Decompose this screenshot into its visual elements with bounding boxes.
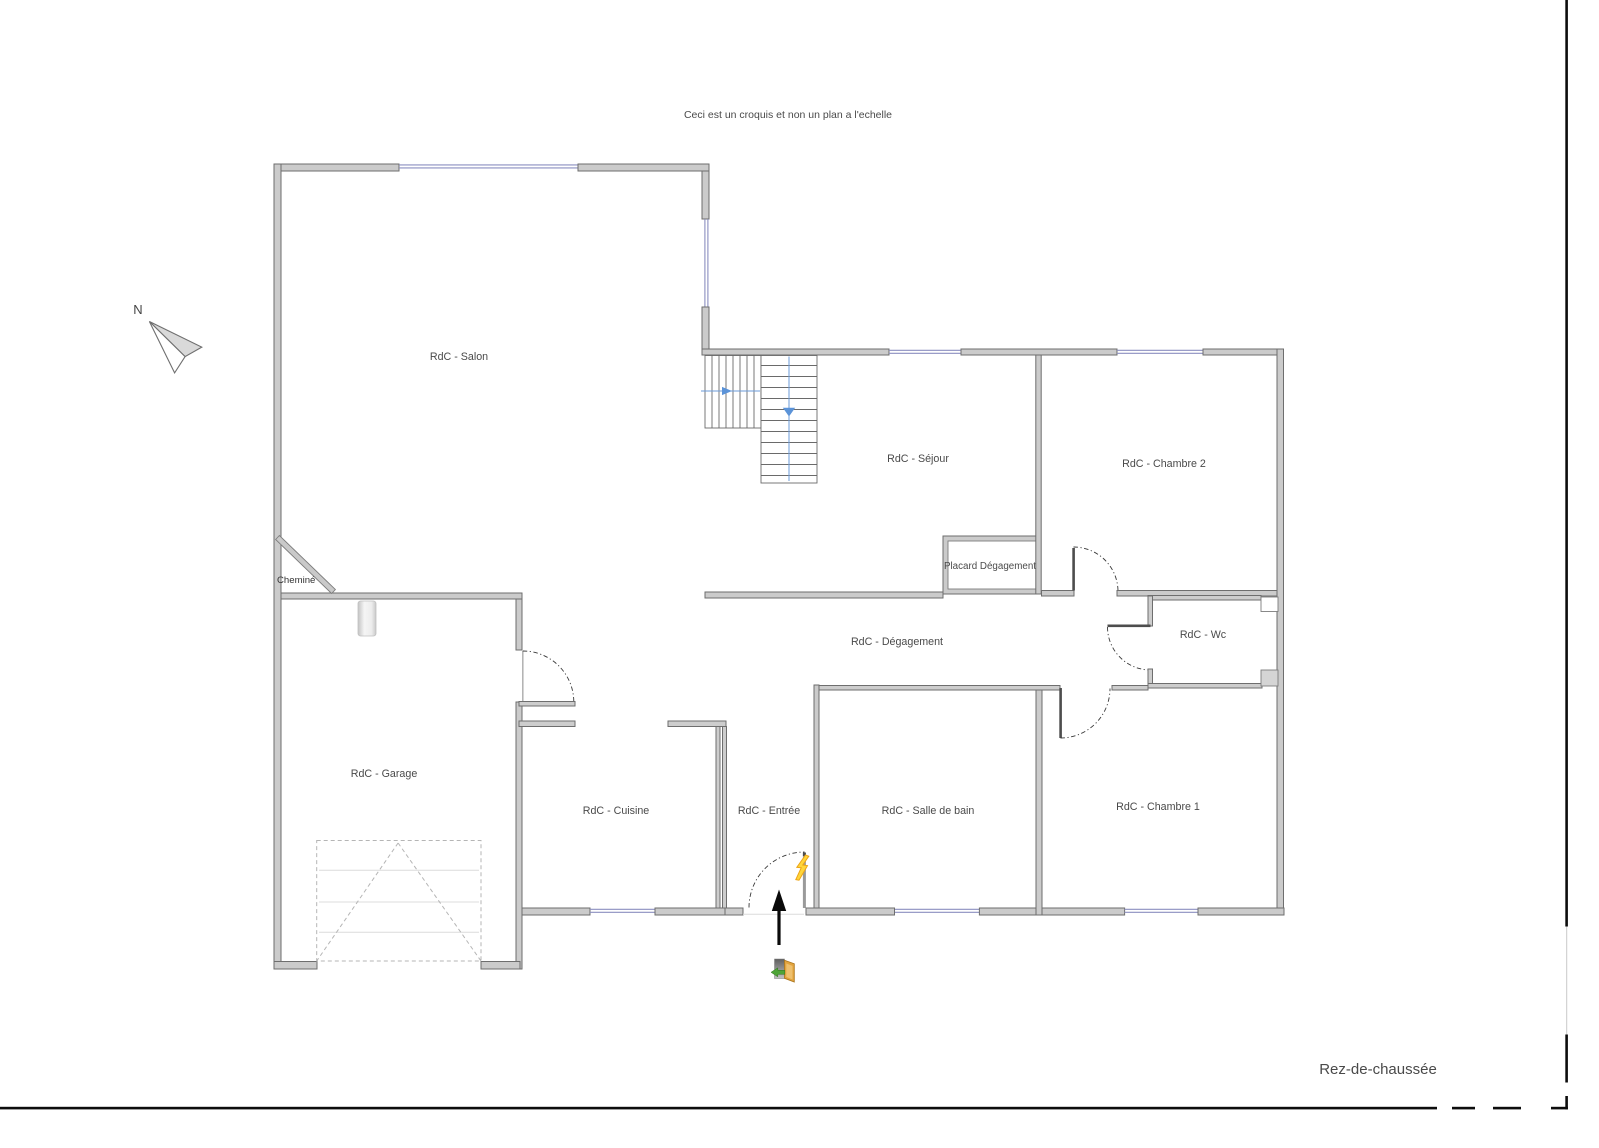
svg-text:RdC - Dégagement: RdC - Dégagement: [851, 636, 943, 648]
svg-text:N: N: [133, 302, 142, 317]
svg-text:RdC - Cuisine: RdC - Cuisine: [583, 805, 650, 817]
svg-text:Ceci est un croquis et non un: Ceci est un croquis et non un plan a l'e…: [684, 109, 892, 121]
svg-text:RdC - Chambre 2: RdC - Chambre 2: [1122, 458, 1206, 470]
svg-text:RdC - Wc: RdC - Wc: [1180, 629, 1227, 641]
svg-text:RdC - Salle de bain: RdC - Salle de bain: [882, 805, 975, 817]
svg-text:Placard Dégagement: Placard Dégagement: [944, 561, 1036, 572]
svg-text:RdC - Entrée: RdC - Entrée: [738, 805, 800, 817]
svg-text:Cheminé: Cheminé: [277, 575, 315, 586]
svg-text:RdC - Séjour: RdC - Séjour: [887, 453, 949, 465]
svg-text:RdC - Salon: RdC - Salon: [430, 351, 488, 363]
svg-text:Rez-de-chaussée: Rez-de-chaussée: [1319, 1061, 1437, 1078]
svg-text:RdC - Chambre 1: RdC - Chambre 1: [1116, 801, 1200, 813]
svg-text:RdC - Garage: RdC - Garage: [351, 768, 418, 780]
